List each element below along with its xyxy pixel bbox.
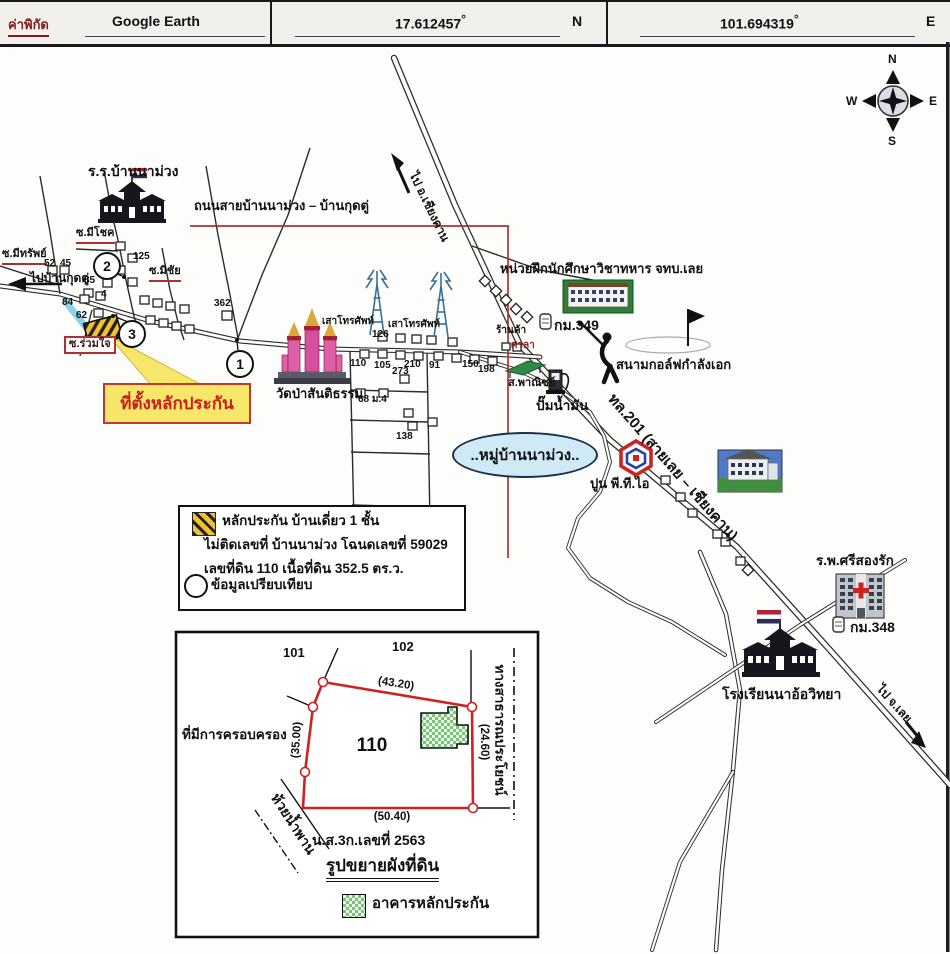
compass-east-label: E bbox=[929, 94, 937, 109]
label-telephone-tower-1: เสาโทรศัพท์ bbox=[322, 316, 374, 329]
house-number: 4 bbox=[101, 289, 107, 302]
label-golf-course: สนามกอล์ฟกำลังเอก bbox=[616, 357, 731, 373]
label-sala: ศาลา bbox=[511, 340, 535, 353]
inset-deed-number: น.ส.3ก.เลขที่ 2563 bbox=[312, 832, 425, 850]
legend-comparison-swatch bbox=[184, 574, 208, 598]
compass-rose-icon bbox=[862, 70, 924, 132]
legend-item-collateral: หลักประกัน บ้านเดี่ยว 1 ชั้น bbox=[222, 513, 379, 530]
comparison-marker-1: 1 bbox=[226, 350, 254, 378]
direction-arrow-chiang-khan bbox=[391, 153, 409, 193]
km-milestone-icon bbox=[833, 617, 844, 632]
house-number: 84 bbox=[62, 297, 73, 310]
comparison-marker-3: 3 bbox=[118, 320, 146, 348]
label-school-na-o: โรงเรียนนาอ้อวิทยา bbox=[722, 686, 841, 704]
label-road-ban-nam-muang: ถนนสายบ้านนาม่วง – บ้านกุดตู่ bbox=[194, 198, 369, 214]
military-building-icon bbox=[563, 280, 633, 313]
inset-building-legend: อาคารหลักประกัน bbox=[372, 895, 489, 914]
inset-building-swatch bbox=[342, 894, 366, 918]
inset-plot-diagram bbox=[176, 632, 538, 937]
inset-parcel-101: 101 bbox=[283, 645, 305, 661]
house-number: 105 bbox=[374, 360, 391, 373]
legend-collateral-swatch bbox=[192, 512, 216, 536]
label-km-349: กม.349 bbox=[554, 317, 599, 335]
house-number: 150 bbox=[462, 359, 479, 372]
hospital-icon bbox=[836, 574, 884, 618]
compass-north-label: N bbox=[888, 52, 897, 67]
legend-item-address: ไม่ติดเลขที่ บ้านนาม่วง โฉนดเลขที่ 59029 bbox=[204, 537, 448, 554]
building-photo-icon bbox=[718, 449, 782, 492]
house-number: 52 bbox=[44, 258, 55, 271]
inset-dim-bottom: (50.40) bbox=[374, 810, 410, 824]
label-soi-ruam-jai: ซ.ร่วมใจ bbox=[64, 336, 116, 354]
survey-map-page: ค่าพิกัด Google Earth 17.612457° N 101.6… bbox=[0, 0, 950, 954]
label-gas-station: ปั๊มน้ำมัน bbox=[536, 398, 588, 415]
inset-parcel-102: 102 bbox=[392, 639, 414, 655]
label-cement-pti: ปูน พี.ที.ไอ bbox=[590, 476, 649, 492]
inset-title: รูปขยายผังที่ดิน bbox=[326, 855, 439, 882]
page-edge bbox=[946, 42, 950, 952]
label-commercial: ส.พาณิชย์ bbox=[508, 377, 555, 391]
house-number: 68 ม.4 bbox=[358, 394, 387, 407]
house-number: 62 bbox=[76, 310, 87, 323]
label-to-ban-kut-tu: ไปบ้านกุดตู่ bbox=[30, 271, 89, 286]
golf-flag-icon bbox=[626, 309, 710, 353]
label-km-348: กม.348 bbox=[850, 619, 895, 637]
inset-dim-right: (24.60) bbox=[477, 724, 491, 760]
house-number: 198 bbox=[478, 364, 495, 377]
label-soi-mi-chai: ซ.มีชัย bbox=[149, 265, 181, 282]
label-shop: ร้านค้า bbox=[496, 325, 526, 338]
house-number: 138 bbox=[396, 431, 413, 444]
label-soi-mi-sap: ซ.มีทรัพย์ bbox=[2, 248, 47, 265]
label-hospital: ร.พ.ศรีสองรัก bbox=[816, 553, 894, 570]
inset-dim-left: (35.00) bbox=[289, 721, 306, 758]
house-number: 362 bbox=[214, 298, 231, 311]
map-canvas: .hs{fill:#fff;stroke:#222;stroke-width:1… bbox=[0, 0, 950, 954]
label-temple-wat-pa: วัดป่าสันติธรรม bbox=[276, 386, 363, 402]
label-military-training-unit: หน่วยฝึกนักศึกษาวิชาทหาร จทบ.เลย bbox=[500, 261, 703, 277]
compass-south-label: S bbox=[888, 134, 896, 149]
legend-item-area: เลขที่ดิน 110 เนื้อที่ดิน 352.5 ตร.ว. bbox=[204, 561, 404, 578]
collateral-location-callout: ที่ตั้งหลักประกัน bbox=[103, 383, 251, 424]
village-nam-muang-ellipse: ..หมู่บ้านนาม่วง.. bbox=[452, 432, 598, 478]
inset-parcel-110: 110 bbox=[357, 734, 388, 758]
inset-public-road-label: ทางสาธารณประโยชน์ bbox=[491, 664, 508, 795]
house-number: 110 bbox=[350, 358, 366, 371]
compass-west-label: W bbox=[846, 94, 857, 109]
house-number: 45 bbox=[60, 258, 71, 271]
label-soi-mi-chok: ซ.มีโชค bbox=[76, 227, 115, 244]
comparison-marker-2: 2 bbox=[93, 252, 121, 280]
house-number: 273 bbox=[392, 366, 409, 379]
house-number: 125 bbox=[133, 251, 150, 264]
legend-item-comparison: ข้อมูลเปรียบเทียบ bbox=[211, 577, 312, 594]
label-telephone-tower-2: เสาโทรศัพท์ bbox=[388, 319, 440, 332]
house-number: 91 bbox=[429, 360, 440, 373]
km-milestone-icon bbox=[540, 314, 551, 329]
inset-occupied-label: ที่มีการครอบครอง bbox=[182, 727, 287, 744]
house-number: 126 bbox=[372, 329, 389, 342]
house-number: 85 bbox=[84, 275, 95, 288]
label-school-ban-nam-muang: ร.ร.บ้านนาม่วง bbox=[88, 163, 179, 181]
